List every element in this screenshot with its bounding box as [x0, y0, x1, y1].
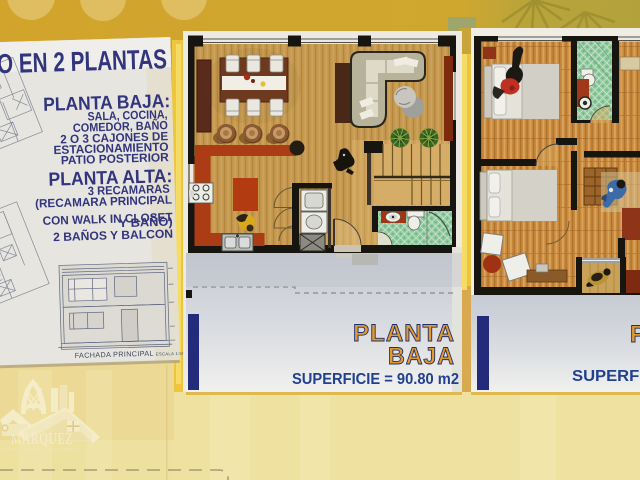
svg-text:MARQUEZ: MARQUEZ — [11, 429, 73, 448]
svg-text:BAJA: BAJA — [388, 343, 455, 370]
svg-text:BIENES RAICES: BIENES RAICES — [23, 448, 74, 454]
svg-text:O EN 2 PLANTAS: O EN 2 PLANTAS — [0, 43, 167, 79]
svg-text:PLANTA: PLANTA — [630, 321, 640, 348]
svg-text:SUPERFICIE = 90.80 m2: SUPERFICIE = 90.80 m2 — [292, 371, 459, 388]
svg-text:SUPERFICIE = 90.80: SUPERFICIE = 90.80 — [572, 368, 640, 385]
